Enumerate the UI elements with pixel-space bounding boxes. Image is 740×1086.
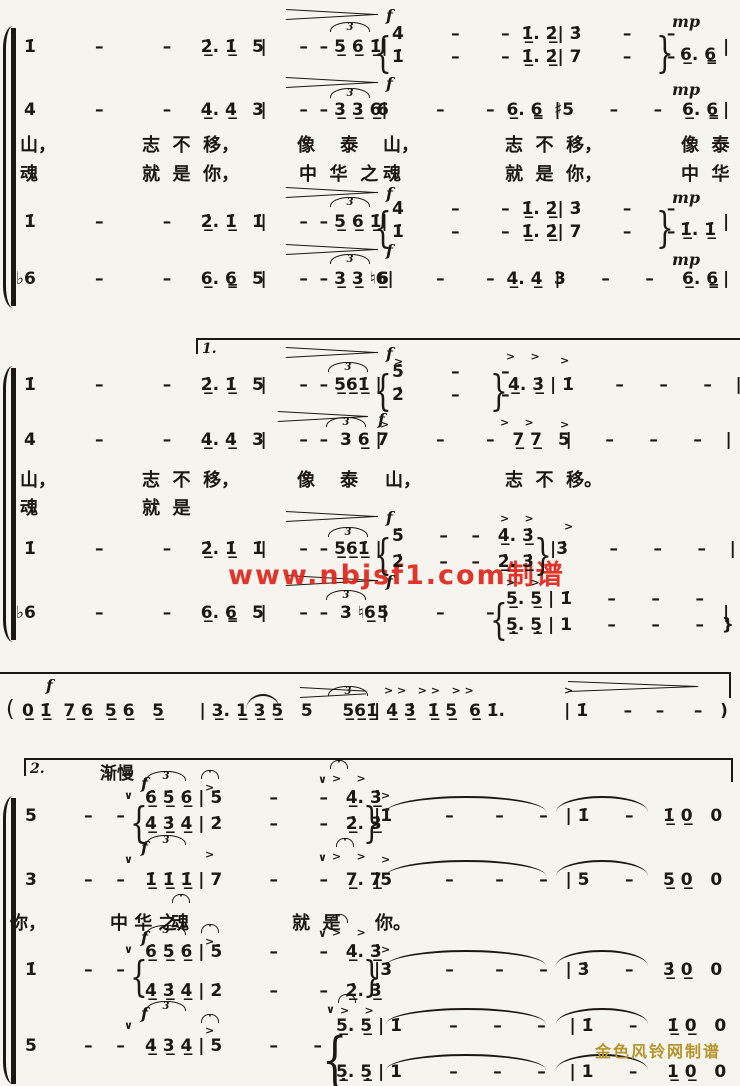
s1-sop-divisi-brace: { [374,28,392,78]
triplet-mark: 3 [330,88,370,98]
triplet-mark: 3 [146,925,186,935]
accent-mark: > > [340,1004,374,1017]
s3-alto-m1: 3 – – [25,870,125,890]
triplet-mark: 3 [330,254,370,264]
s1-lyric1-6: 像 泰 [681,131,730,157]
hairpin [568,686,698,692]
s1-alto-m3: 6 – – 6̲. 6̳ | [377,100,561,120]
s2-ten-divisi-bottom: 2̇ – – 2̲̇. 3̲̇ [392,552,534,572]
volta1-label: 1. [202,341,217,357]
dynamic-mp: mp [672,250,700,269]
triplet-mark: 3 [328,527,368,537]
s1-ten-divisi-bottom: 1̇ – – 1̲̇. 2̲̇| 7 – – [392,222,675,242]
s1-bass-m1: ♭6 – – 6̲. 6̳ | [16,269,267,289]
s1-lyric1-4: 山， [383,131,419,157]
fermata-mark: · [201,1014,219,1023]
accent-mark: > [394,355,403,368]
s3-lyric-5: 你。 [375,909,411,935]
dynamic-f: f [386,508,393,527]
volta1-bracket-hook-right [729,672,731,698]
triplet-mark: 3 [328,686,368,696]
triplet-mark: 3 [146,1001,186,1011]
s3-bass-m2: 4̲ 3̲ 4̲ | 5 – – [145,1036,322,1056]
accent-mark: > [381,943,390,956]
volta1-bracket-hook-left [196,338,198,354]
triplet-mark: 3 [326,590,366,600]
s1-lyric2-1: 魂 [20,160,38,186]
s1-alto-m2: 3 – – 3̲ 3̲ 6̲| [252,100,388,120]
s1-sop-m4-end: 6̲. 6̳ [680,45,716,65]
interlude-m1-m2: 0̲ 1̲̇ 7̲ 6̲ 5̲ 6̲ 5̲ | 3̲. 1̲ 3̲ 5̲ 5 5… [22,701,378,721]
hairpin [286,516,378,522]
accent-mark: > [205,1024,214,1037]
volta2-bracket-hook-left [24,758,26,776]
s3-bass-divisi-bottom: 5̲̣. 5̲̣ | 1 – – – | 1 – 1̲ 0̲ 0 ‖ [336,1062,740,1082]
accent-mark: > > [500,512,534,525]
s1-ten-m1: 1̇ – – 2̲̇. 1̲̇ | [24,212,267,232]
s1-sop-divisi-bottom: 1̇ – – 1̲̇. 2̲̇| 7 – – [392,47,675,67]
s2-bass-m3: 5 – – [377,603,495,623]
dynamic-mp: mp [672,188,700,207]
s1-alto-m4-end: 6̲. 6̳ [682,100,718,120]
breath-mark: ∨ [318,773,327,786]
fermata-mark: · [201,924,219,933]
s1-lyric1-5: 志 不 移， [505,131,602,157]
interlude-m3-m4: | 4̲̇ 3̲̇ 1̲̇ 5̲ 6̲ 1̇. | 1̇ – – – ) :‖ [374,701,740,721]
accent-mark: > > [506,576,540,589]
s1-ten-barline-end: | [723,212,729,232]
breath-mark: ∨ [318,851,327,864]
s1-ten-m4-end: 1̲̇. 1̲̇ [680,220,716,240]
interlude-open-paren: ( [6,697,15,722]
dynamic-f: f [386,344,393,363]
s1-lyric2-5: 就 是 你， [505,160,602,186]
accent-mark: > [560,418,569,431]
s2-sop-m1: 1̇ – – 2̲̇. 1̲̇ | [24,375,267,395]
s2-ten-m2: 1̇ – – 5̲6̲1̲̇ | [252,539,382,559]
system3-start-barline [11,798,16,1084]
fermata-mark: · [336,838,354,847]
s2-bass-divisi-top: 5̲. 5̲ | 1̇ – – – [506,589,704,609]
hairpin [286,82,378,88]
dynamic-f: f [386,184,393,203]
dynamic-f: f [386,6,393,25]
breath-mark: ∨ [318,927,327,940]
breath-mark: ∨ [124,1019,133,1032]
triplet-mark: 3 [330,22,370,32]
s1-sop-m2: 5 – – 5̲ 6̲ 1̲̇| [252,37,388,57]
s3-lyric-1: 你， [10,909,46,935]
triplet-mark: 3 [330,197,370,207]
s1-lyric1-1: 山， [20,131,56,157]
dynamic-f: f [46,676,53,695]
accent-mark: > > [500,416,534,429]
dynamic-f: f [386,74,393,93]
dynamic-f: f [386,241,393,260]
s2-lyric2-1: 魂 [20,494,38,520]
s1-sop-divisi-top: 4̇ – – 1̲̇. 2̲̇| 3̇ – – [392,24,675,44]
hairpin [286,14,378,20]
s2-bass-barline-end: | [723,603,729,623]
accent-mark: > [205,935,214,948]
s1-alto-barline-end: | [723,100,729,120]
volta1-bracket-line [196,338,740,340]
triplet-mark: 3 [326,417,366,427]
hairpin [286,352,378,358]
volta2-label: 2. [30,761,45,777]
s3-sop-m1: 5 – – [25,806,125,826]
breath-mark: ∨ [326,1003,335,1016]
watermark-gold: 金色风铃网制谱 [595,1038,721,1062]
s1-lyric1-2: 志 不 移， [142,131,239,157]
fermata-mark: · [330,914,348,923]
s2-sop-divisi-close: } [490,366,508,416]
s2-lyric1-4: 山， [385,466,421,492]
s1-bass-m4-end: 6̲. 6̳ [682,269,718,289]
s2-lyric1-3: 像 泰 [297,466,358,492]
s1-lyric2-3: 中 华 之 [299,160,378,186]
s2-bass-divisi-bottom: 5̲̣. 5̲̣ | 1 – – – } [506,615,734,635]
s1-lyric2-4: 魂 [383,160,401,186]
s2-lyric1-2: 志 不 移， [142,466,239,492]
s1-alto-m1: 4 – – 4̲. 4̲ | [24,100,267,120]
s1-alto-m4: ♯5 – – [554,100,662,120]
s2-ten-m1: 1̇ – – 2̲̇. 1̲̇ | [24,539,267,559]
s1-ten-m2: 1̇ – – 5̲ 6̲ 1̲̇| [252,212,388,232]
s3-ten-m1: 1̇ – – [25,960,125,980]
system1-start-barline [11,28,16,306]
s1-lyric2-2: 就 是 你， [142,160,239,186]
s1-lyric1-3: 像 泰 [297,131,358,157]
accent-mark: > [381,789,390,802]
s3-alto-m2: 1̲̇ 1̲̇ 1̲̇ | 7 – – 7̲. 7̲ [145,870,382,890]
s2-ten-divisi-top: 5̇ – – 4̲̇. 3̲̇ [392,526,534,546]
s1-bass-m2: 5 – – 3̲ 3̲ ♮6̲| [252,269,394,289]
s2-bass-m2: 5 – – 3 ♮6̲ | [252,603,388,623]
accent-mark: > [205,781,214,794]
triplet-mark: 3 [146,835,186,845]
volta2-bracket-hook-right [731,758,733,782]
accent-mark: > > [506,350,540,363]
accent-mark: > [380,418,389,431]
s2-ten-m4: |3̇ – – – | [550,539,736,559]
s3-sop-divisi-bottom: 4̲̇ 3̲̇ 4̲̇ | 2̇ – – 2̲̇. 3̲̇ [145,814,382,834]
s1-ten-divisi-top: 4̇ – – 1̲̇. 2̲̇| 3̇ – – [392,199,675,219]
s2-lyric1-1: 山， [20,466,56,492]
fermata-mark: · [201,770,219,779]
fermata-mark: · [172,894,190,903]
accent-mark: > [560,354,569,367]
s3-alto-m3-m4: |5 – – – | 5 – 5̲ 0̲ 0 ‖ [374,870,740,890]
s2-alto-m3: 7 – – 7̲ 7̲ | [377,430,572,450]
s2-sop-m2: 5 – – 5̲6̲1̲̇ | [252,375,382,395]
breath-mark: ∨ [124,853,133,866]
dynamic-mp: mp [672,12,700,31]
s2-alto-m1: 4 – – 4̲. 4̲ | [24,430,267,450]
s2-lyric1-5: 志 不 移。 [505,466,602,492]
s3-sop-m3-m4: |1̇ – – – | 1̇ – 1̲̇ 0̲ 0 ‖ [374,806,740,826]
accent-mark: > [564,520,573,533]
s3-ten-divisi-top: 6̲̇ 5̲̇ 6̲̇ | 5̇ – – 4̲̇. 3̲̇ [145,942,382,962]
s3-bass-divisi-top: 5̲. 5̲ | 1̇ – – – | 1̇ – 1̲̇ 0̲ 0 ‖ [336,1016,740,1036]
s2-sop-divisi-brace: { [374,366,392,416]
accent-mark: > [381,853,390,866]
s3-sop-divisi-top: 6̲̇ 5̲̇ 6̲̇ | 5̇ – – 4̲̇. 3̲̇ [145,788,382,808]
s2-alto-m4: 5 – – – | [558,430,732,450]
dynamic-mp: mp [672,80,700,99]
volta1-bracket-line2 [0,672,729,674]
fermata-mark: · [338,994,356,1003]
sheet-music-page: www.nbjsf1.com制谱 金色风铃网制谱 1̇ – – 2̲̇. 1̲̇… [0,0,740,1086]
s1-lyric2-6: 中 华 [681,160,730,186]
accent-mark: > > [332,772,366,785]
s2-bass-m1: ♭6 – – 6̲. 6̳ | [16,603,267,623]
s1-sop-divisi-close: } [656,28,674,78]
system2-start-barline [11,368,16,640]
fermata-mark: · [330,760,348,769]
s1-sop-m1: 1̇ – – 2̲̇. 1̲̇ | [24,37,267,57]
s3-bass-m1: 5 – – [25,1036,125,1056]
triplet-mark: 3 [328,362,368,372]
s2-sop-m3b: 4̲̇. 3̲̇ | 1̇ – – – | [508,375,740,395]
s1-ten-divisi-close: } [656,203,674,253]
triplet-mark: 3 [146,771,186,781]
s1-bass-m3: 6 – – 4̲. 4̲ | [377,269,561,289]
accent-mark: > > [332,926,366,939]
s1-bass-m4: 3 – – [554,269,654,289]
dynamic-f: f [386,572,393,591]
s2-alto-m2: 3 – – 3 6̲ | [252,430,382,450]
s3-ten-m3-m4: |3̇ – – – | 3̇ – 3̲̇ 0̲ 0 ‖ [374,960,740,980]
accent-mark: > > > > > > [384,684,474,697]
s2-lyric2-2: 就 是 [142,494,191,520]
tempo-mark: 渐慢 [100,759,134,784]
accent-mark: > [564,684,573,697]
s1-bass-barline-end: | [723,269,729,289]
hairpin [286,192,378,198]
accent-mark: > > [332,850,366,863]
accent-mark: > [205,848,214,861]
hairpin [286,249,378,255]
s1-sop-barline-end: | [723,37,729,57]
